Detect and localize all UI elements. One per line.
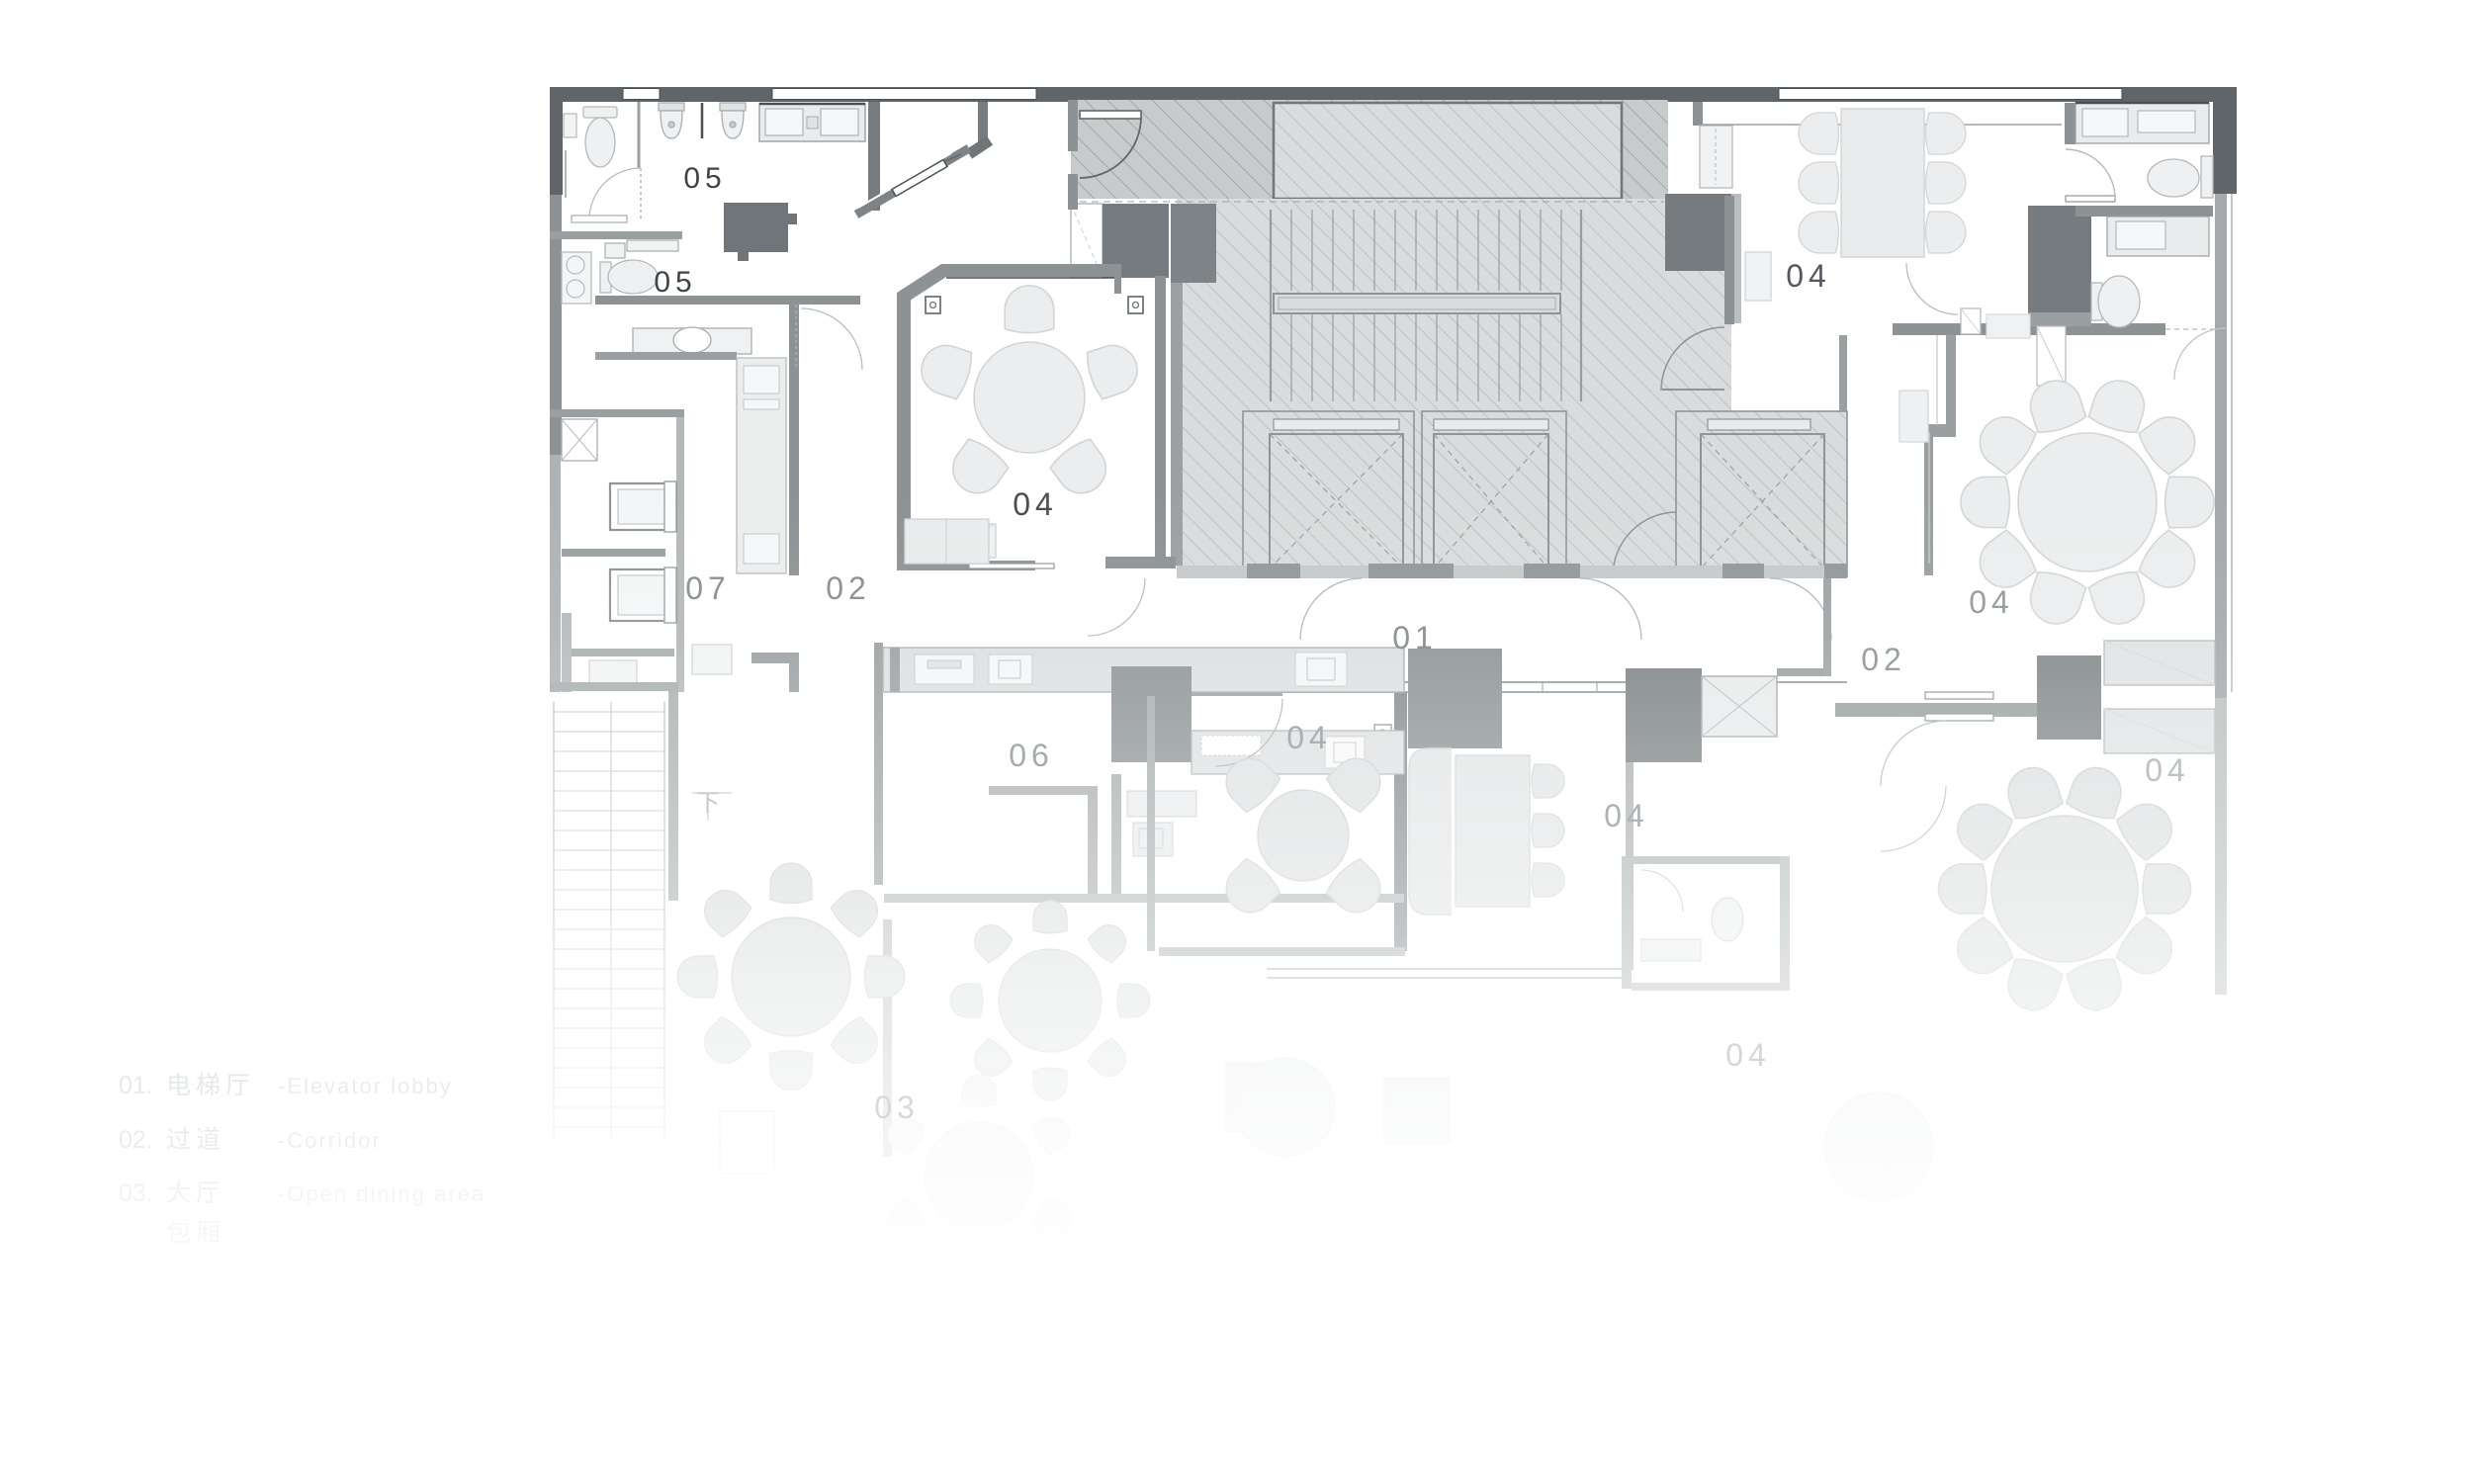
svg-text:电梯厅: 电梯厅 xyxy=(166,1072,255,1099)
svg-text:-Corridor: -Corridor xyxy=(278,1128,382,1153)
svg-text:04: 04 xyxy=(2145,752,2190,788)
svg-text:04: 04 xyxy=(1013,486,1058,522)
svg-text:04: 04 xyxy=(1725,1037,1771,1073)
svg-text:01.: 01. xyxy=(119,1072,153,1099)
svg-text:03: 03 xyxy=(874,1090,920,1125)
svg-text:03.: 03. xyxy=(119,1179,153,1207)
svg-text:包厢: 包厢 xyxy=(166,1219,225,1247)
svg-text:-Elevator lobby: -Elevator lobby xyxy=(278,1074,453,1098)
svg-text:04: 04 xyxy=(1969,584,2014,620)
svg-text:04: 04 xyxy=(1286,720,1332,755)
svg-text:-Open dining area: -Open dining area xyxy=(278,1181,486,1206)
svg-text:07: 07 xyxy=(685,570,731,606)
svg-text:02: 02 xyxy=(826,570,871,606)
svg-text:06: 06 xyxy=(1009,738,1054,773)
svg-text:大厅: 大厅 xyxy=(166,1179,225,1207)
svg-text:05: 05 xyxy=(683,162,726,195)
svg-text:04: 04 xyxy=(1786,258,1831,294)
svg-text:05: 05 xyxy=(654,266,696,299)
svg-text:04: 04 xyxy=(1604,798,1649,833)
svg-text:过道: 过道 xyxy=(166,1126,225,1154)
svg-text:02: 02 xyxy=(1861,642,1906,677)
svg-text:01: 01 xyxy=(1392,620,1438,655)
svg-text:02.: 02. xyxy=(119,1126,153,1154)
svg-text:下: 下 xyxy=(696,790,720,817)
